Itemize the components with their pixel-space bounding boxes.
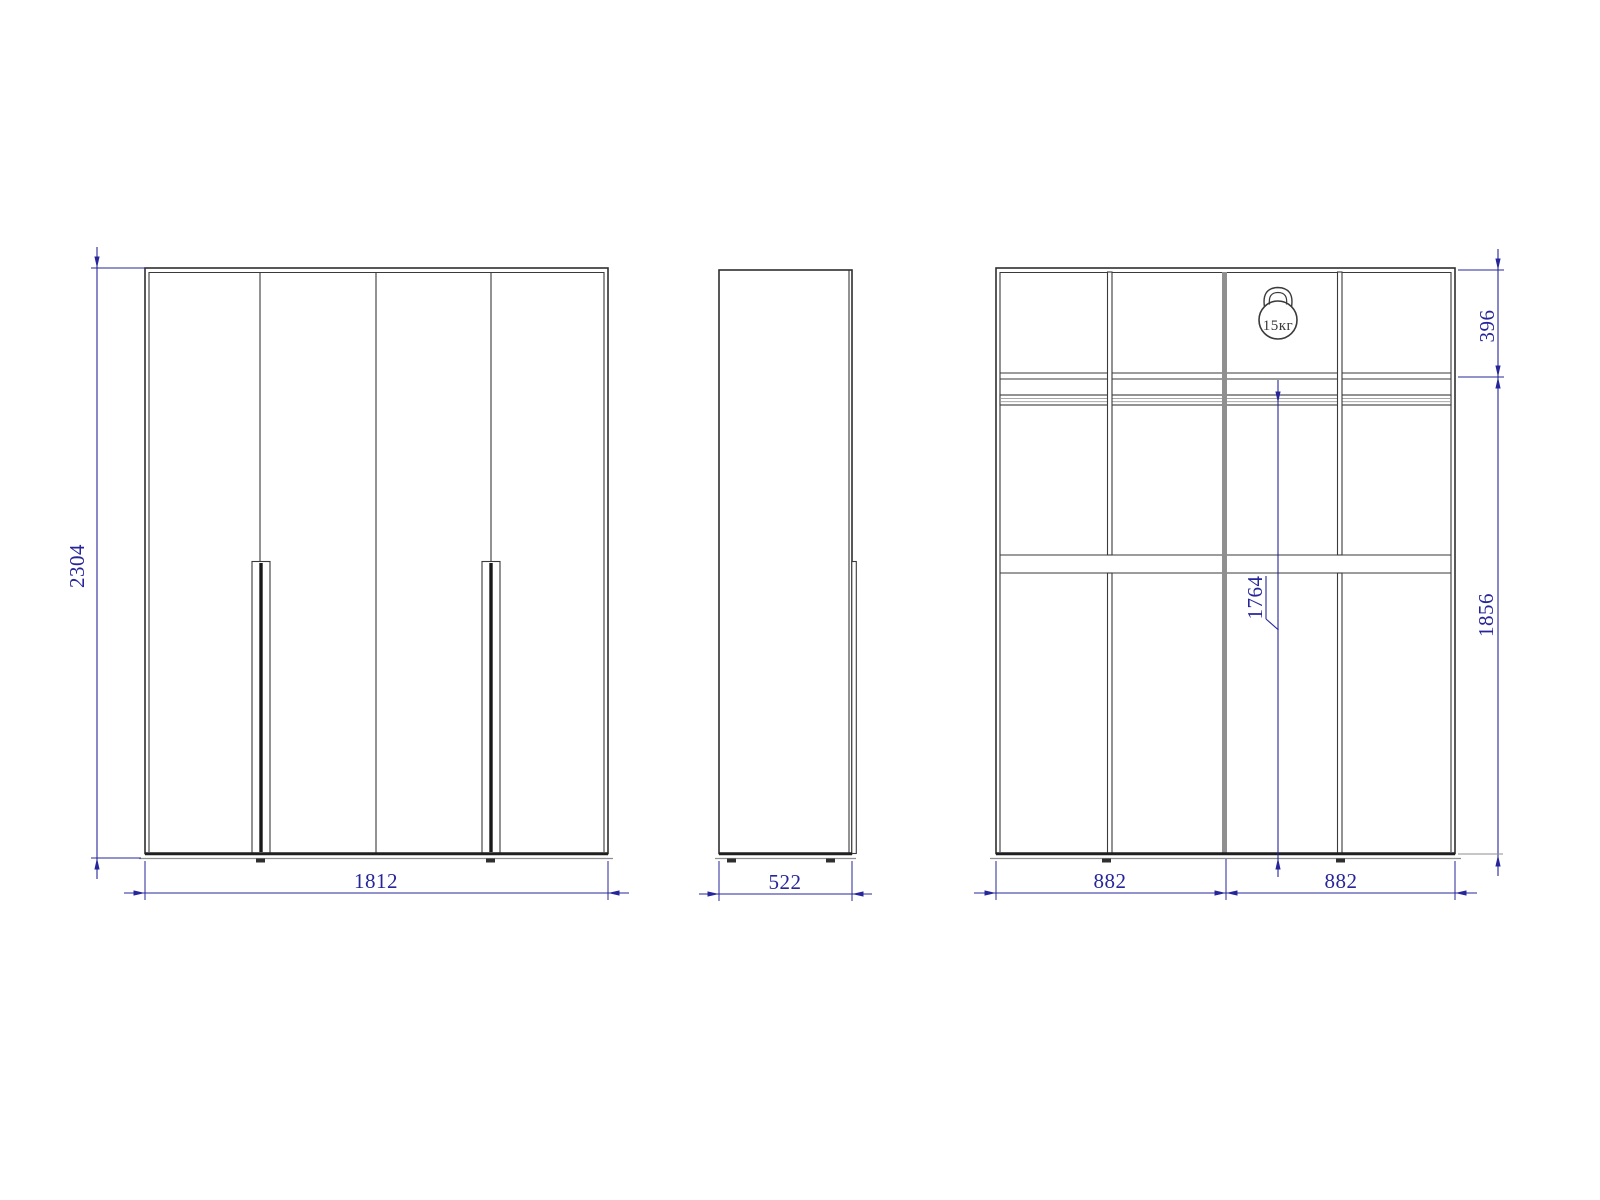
front-view	[139, 268, 613, 863]
right-sub-partition-lower	[1338, 573, 1343, 854]
side-view	[715, 270, 856, 863]
dim-top-section-value: 396	[1475, 310, 1499, 343]
door-handle-right	[482, 562, 500, 854]
dim-height-value: 2304	[65, 544, 89, 588]
side-carcass-outline	[719, 270, 852, 854]
load-capacity-label: 15кг	[1263, 318, 1293, 334]
internal-foot-left	[1102, 859, 1111, 863]
front-foot-left	[256, 859, 265, 863]
dim-top-section: 396	[1458, 249, 1504, 876]
left-sub-partition-upper	[1108, 272, 1113, 555]
dim-right-half-value: 882	[1325, 869, 1358, 893]
dim-rod-height-value: 1764	[1243, 576, 1267, 620]
dim-depth: 522	[699, 861, 872, 901]
internal-view: 15кг	[990, 268, 1461, 863]
dim-depth-value: 522	[769, 870, 802, 894]
drawing-canvas: 15кг 2304 1812 522	[0, 0, 1600, 1200]
dim-width-value: 1812	[354, 869, 398, 893]
side-foot-left	[727, 859, 736, 863]
front-foot-right	[486, 859, 495, 863]
side-handle-profile	[852, 562, 857, 854]
dim-lower-section-value: 1856	[1474, 593, 1498, 637]
dim-lower-section: 1856	[1458, 366, 1503, 867]
internal-foot-right	[1336, 859, 1345, 863]
side-foot-right	[826, 859, 835, 863]
drawing-page: 15кг 2304 1812 522	[0, 0, 1600, 1200]
dim-left-half-value: 882	[1094, 869, 1127, 893]
door-handle-left	[252, 562, 270, 854]
left-sub-partition-lower	[1108, 573, 1113, 854]
dim-halves: 882 882	[974, 859, 1477, 900]
dim-width: 1812	[124, 861, 629, 900]
right-sub-partition-upper	[1338, 272, 1343, 555]
dim-height: 2304	[65, 247, 146, 879]
